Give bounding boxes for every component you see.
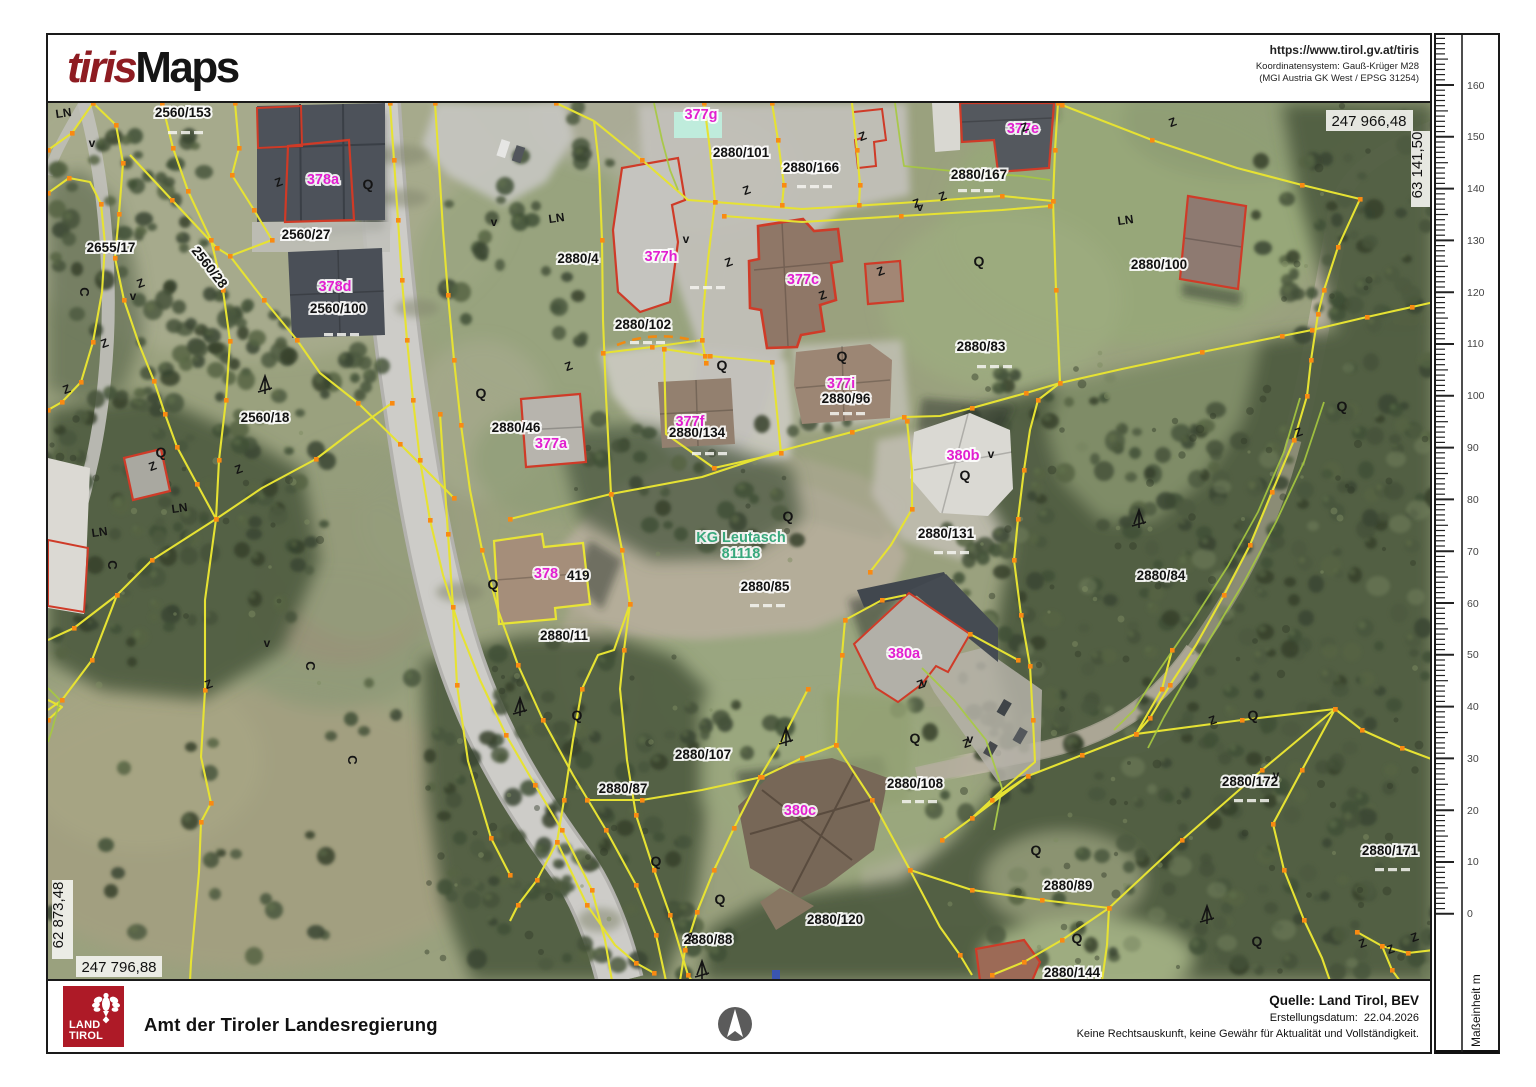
svg-text:120: 120 <box>1467 287 1485 299</box>
svg-text:Q: Q <box>910 730 921 746</box>
svg-text:2880/84: 2880/84 <box>1137 568 1186 583</box>
svg-text:80: 80 <box>1467 494 1479 506</box>
svg-text:2880/172: 2880/172 <box>1222 774 1278 789</box>
svg-text:2880/46: 2880/46 <box>492 420 541 435</box>
svg-text:247 796,88: 247 796,88 <box>81 959 156 976</box>
svg-text:Q: Q <box>960 467 971 483</box>
svg-text:2880/11: 2880/11 <box>540 628 589 643</box>
svg-text:2880/131: 2880/131 <box>918 526 975 541</box>
svg-text:2880/101: 2880/101 <box>713 145 770 160</box>
svg-text:377f: 377f <box>675 414 704 430</box>
svg-text:v: v <box>491 215 498 229</box>
svg-text:v: v <box>967 732 974 746</box>
svg-text:2880/96: 2880/96 <box>822 391 871 406</box>
svg-text:Q: Q <box>488 576 499 592</box>
svg-text:C: C <box>77 287 92 297</box>
svg-text:380c: 380c <box>784 803 816 819</box>
svg-text:50: 50 <box>1467 649 1479 661</box>
svg-text:378a: 378a <box>307 172 340 188</box>
svg-text:Q: Q <box>363 176 374 192</box>
svg-text:2880/4: 2880/4 <box>557 251 599 266</box>
svg-text:Q: Q <box>1031 842 1042 858</box>
svg-text:Q: Q <box>974 253 985 269</box>
svg-text:2880/144: 2880/144 <box>1044 965 1101 980</box>
svg-text:Q: Q <box>651 853 662 869</box>
svg-text:LN: LN <box>171 500 189 516</box>
svg-text:Q: Q <box>1248 707 1259 723</box>
svg-text:2880/102: 2880/102 <box>615 317 671 332</box>
svg-text:Q: Q <box>572 707 583 723</box>
svg-text:2560/27: 2560/27 <box>282 227 331 242</box>
svg-text:2880/87: 2880/87 <box>599 781 648 796</box>
svg-text:v: v <box>988 447 995 461</box>
svg-text:v: v <box>683 232 690 246</box>
svg-text:140: 140 <box>1467 183 1485 195</box>
svg-text:150: 150 <box>1467 131 1485 143</box>
svg-text:Q: Q <box>156 444 167 460</box>
svg-text:419: 419 <box>567 568 590 583</box>
svg-text:70: 70 <box>1467 546 1479 558</box>
svg-text:378: 378 <box>534 566 558 582</box>
svg-text:100: 100 <box>1467 390 1485 402</box>
svg-text:10: 10 <box>1467 856 1479 868</box>
svg-text:2560/100: 2560/100 <box>310 301 366 316</box>
svg-text:v: v <box>921 676 928 690</box>
svg-text:2880/171: 2880/171 <box>1362 843 1419 858</box>
svg-text:81118: 81118 <box>722 546 761 562</box>
svg-text:2880/85: 2880/85 <box>741 579 790 594</box>
svg-text:C: C <box>303 661 318 671</box>
svg-text:LN: LN <box>548 210 566 226</box>
svg-text:2880/120: 2880/120 <box>807 912 863 927</box>
svg-text:v: v <box>917 200 924 214</box>
svg-text:KG Leutasch: KG Leutasch <box>696 530 785 546</box>
svg-text:C: C <box>105 560 120 570</box>
svg-text:160: 160 <box>1467 80 1485 92</box>
svg-text:2655/17: 2655/17 <box>87 240 136 255</box>
svg-text:LN: LN <box>91 524 109 540</box>
svg-text:63 141,50: 63 141,50 <box>1409 132 1426 199</box>
svg-text:Q: Q <box>1337 398 1348 414</box>
svg-text:Q: Q <box>476 385 487 401</box>
svg-text:Q: Q <box>837 348 848 364</box>
svg-text:Q: Q <box>783 508 794 524</box>
svg-text:20: 20 <box>1467 805 1479 817</box>
svg-text:110: 110 <box>1467 338 1484 350</box>
svg-text:2560/153: 2560/153 <box>155 105 212 120</box>
svg-text:Q: Q <box>1072 930 1083 946</box>
svg-text:30: 30 <box>1467 753 1479 765</box>
svg-text:2880/100: 2880/100 <box>1131 257 1187 272</box>
svg-text:377a: 377a <box>535 436 568 452</box>
svg-text:2560/18: 2560/18 <box>241 410 290 425</box>
svg-text:v: v <box>130 289 137 303</box>
svg-text:380a: 380a <box>888 646 921 662</box>
svg-text:v: v <box>264 636 271 650</box>
svg-text:2880/107: 2880/107 <box>675 747 731 762</box>
svg-text:2880/83: 2880/83 <box>957 339 1006 354</box>
svg-text:377h: 377h <box>644 249 677 265</box>
svg-text:0: 0 <box>1467 908 1473 920</box>
svg-text:LN: LN <box>1117 212 1135 228</box>
svg-text:Q: Q <box>715 891 726 907</box>
svg-text:377c: 377c <box>787 272 819 288</box>
svg-text:377g: 377g <box>684 107 717 123</box>
svg-text:2880/167: 2880/167 <box>951 167 1007 182</box>
svg-text:2880/166: 2880/166 <box>783 160 840 175</box>
svg-text:377i: 377i <box>827 376 855 392</box>
svg-text:60: 60 <box>1467 598 1479 610</box>
svg-text:40: 40 <box>1467 701 1479 713</box>
svg-text:380b: 380b <box>946 448 979 464</box>
svg-text:90: 90 <box>1467 442 1479 454</box>
svg-text:62 873,48: 62 873,48 <box>50 882 67 949</box>
svg-text:2880/108: 2880/108 <box>887 776 944 791</box>
svg-text:Q: Q <box>1252 933 1263 949</box>
svg-text:Maßeinheit m: Maßeinheit m <box>1469 974 1483 1047</box>
svg-text:378d: 378d <box>318 279 351 295</box>
svg-text:2880/89: 2880/89 <box>1044 878 1093 893</box>
svg-text:247 966,48: 247 966,48 <box>1331 113 1406 130</box>
svg-text:v: v <box>89 136 96 150</box>
svg-text:C: C <box>345 755 360 765</box>
svg-text:Q: Q <box>717 357 728 373</box>
svg-text:LN: LN <box>55 105 73 121</box>
svg-text:130: 130 <box>1467 235 1485 247</box>
svg-text:v: v <box>1273 768 1280 782</box>
